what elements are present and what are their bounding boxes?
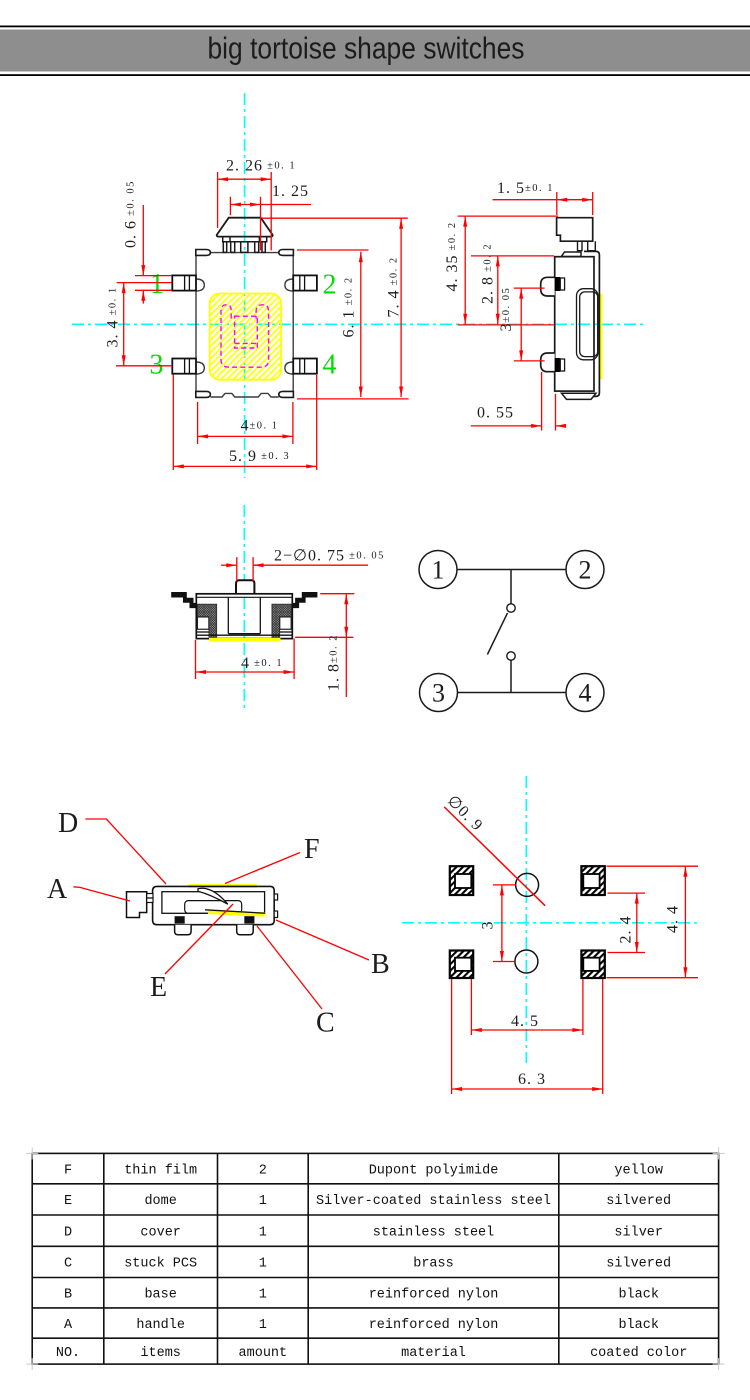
svg-text:1. 5±0. 1: 1. 5±0. 1 xyxy=(497,180,554,197)
svg-text:D: D xyxy=(58,808,78,839)
svg-text:3: 3 xyxy=(432,679,445,708)
svg-text:A: A xyxy=(64,1318,73,1333)
svg-text:big tortoise shape switches: big tortoise shape switches xyxy=(208,32,525,66)
svg-text:items: items xyxy=(140,1346,181,1361)
svg-text:0. 6 ±0. 05: 0. 6 ±0. 05 xyxy=(123,180,140,248)
svg-text:1. 25: 1. 25 xyxy=(272,183,309,200)
svg-text:brass: brass xyxy=(413,1257,454,1272)
svg-text:reinforced nylon: reinforced nylon xyxy=(369,1288,499,1303)
svg-text:material: material xyxy=(401,1346,466,1361)
svg-text:E: E xyxy=(150,972,167,1003)
svg-text:Silver-coated stainless steel: Silver-coated stainless steel xyxy=(316,1194,551,1209)
svg-text:C: C xyxy=(64,1257,72,1272)
svg-text:2: 2 xyxy=(323,270,337,301)
svg-text:5. 9 ±0. 3: 5. 9 ±0. 3 xyxy=(229,448,290,465)
svg-text:4. 5: 4. 5 xyxy=(511,1013,539,1030)
svg-text:1: 1 xyxy=(259,1288,267,1303)
svg-text:0. 55: 0. 55 xyxy=(477,405,514,422)
svg-text:amount: amount xyxy=(239,1346,288,1361)
svg-text:NO.: NO. xyxy=(56,1346,80,1361)
svg-text:E: E xyxy=(64,1194,72,1209)
svg-text:1: 1 xyxy=(150,269,164,300)
svg-text:yellow: yellow xyxy=(614,1163,663,1178)
svg-text:2: 2 xyxy=(259,1163,267,1178)
svg-text:4: 4 xyxy=(579,679,592,708)
svg-text:coated color: coated color xyxy=(590,1346,687,1361)
svg-text:2−∅0. 75 ±0. 05: 2−∅0. 75 ±0. 05 xyxy=(274,548,385,565)
svg-text:4: 4 xyxy=(323,350,337,381)
svg-text:black: black xyxy=(618,1288,659,1303)
svg-text:handle: handle xyxy=(136,1318,185,1333)
svg-text:stuck PCS: stuck PCS xyxy=(124,1257,197,1272)
svg-text:4. 4: 4. 4 xyxy=(665,905,682,933)
svg-text:B: B xyxy=(371,949,390,980)
svg-text:6. 3: 6. 3 xyxy=(518,1071,546,1088)
svg-text:reinforced nylon: reinforced nylon xyxy=(369,1318,499,1333)
svg-text:4±0. 1: 4±0. 1 xyxy=(241,418,279,435)
svg-text:6. 1 ±0. 2: 6. 1 ±0. 2 xyxy=(341,276,358,337)
svg-text:1: 1 xyxy=(259,1318,267,1333)
svg-text:7. 4 ±0. 2: 7. 4 ±0. 2 xyxy=(386,256,403,317)
svg-text:dome: dome xyxy=(144,1194,176,1209)
svg-text:base: base xyxy=(144,1288,176,1303)
svg-text:4 ±0. 1: 4 ±0. 1 xyxy=(241,655,283,672)
svg-text:4. 35 ±0. 2: 4. 35 ±0. 2 xyxy=(444,221,461,291)
svg-text:F: F xyxy=(304,834,320,865)
svg-text:3: 3 xyxy=(150,350,164,381)
svg-text:black: black xyxy=(618,1318,659,1333)
svg-text:1. 8±0. 2: 1. 8±0. 2 xyxy=(326,634,343,691)
svg-text:silvered: silvered xyxy=(606,1257,671,1272)
svg-text:3: 3 xyxy=(480,921,497,930)
svg-text:2. 4: 2. 4 xyxy=(618,916,635,944)
svg-text:Dupont polyimide: Dupont polyimide xyxy=(369,1163,499,1178)
svg-text:1: 1 xyxy=(432,556,445,585)
svg-text:2. 8 ±0. 2: 2. 8 ±0. 2 xyxy=(480,243,497,304)
svg-text:stainless steel: stainless steel xyxy=(373,1225,495,1240)
svg-text:3±0. 05: 3±0. 05 xyxy=(498,287,515,332)
svg-text:2: 2 xyxy=(579,556,592,585)
svg-text:thin film: thin film xyxy=(124,1163,197,1178)
svg-text:D: D xyxy=(64,1225,72,1240)
svg-text:A: A xyxy=(47,874,68,905)
svg-text:C: C xyxy=(316,1008,335,1039)
svg-text:1: 1 xyxy=(259,1257,267,1272)
svg-text:silvered: silvered xyxy=(606,1194,671,1209)
svg-text:2. 26 ±0. 1: 2. 26 ±0. 1 xyxy=(226,158,296,175)
svg-text:B: B xyxy=(64,1288,72,1303)
svg-text:3. 4 ±0. 1: 3. 4 ±0. 1 xyxy=(105,286,122,347)
svg-text:1: 1 xyxy=(259,1225,267,1240)
svg-text:F: F xyxy=(64,1163,72,1178)
svg-text:silver: silver xyxy=(614,1225,663,1240)
svg-text:cover: cover xyxy=(140,1225,181,1240)
svg-text:1: 1 xyxy=(259,1194,267,1209)
